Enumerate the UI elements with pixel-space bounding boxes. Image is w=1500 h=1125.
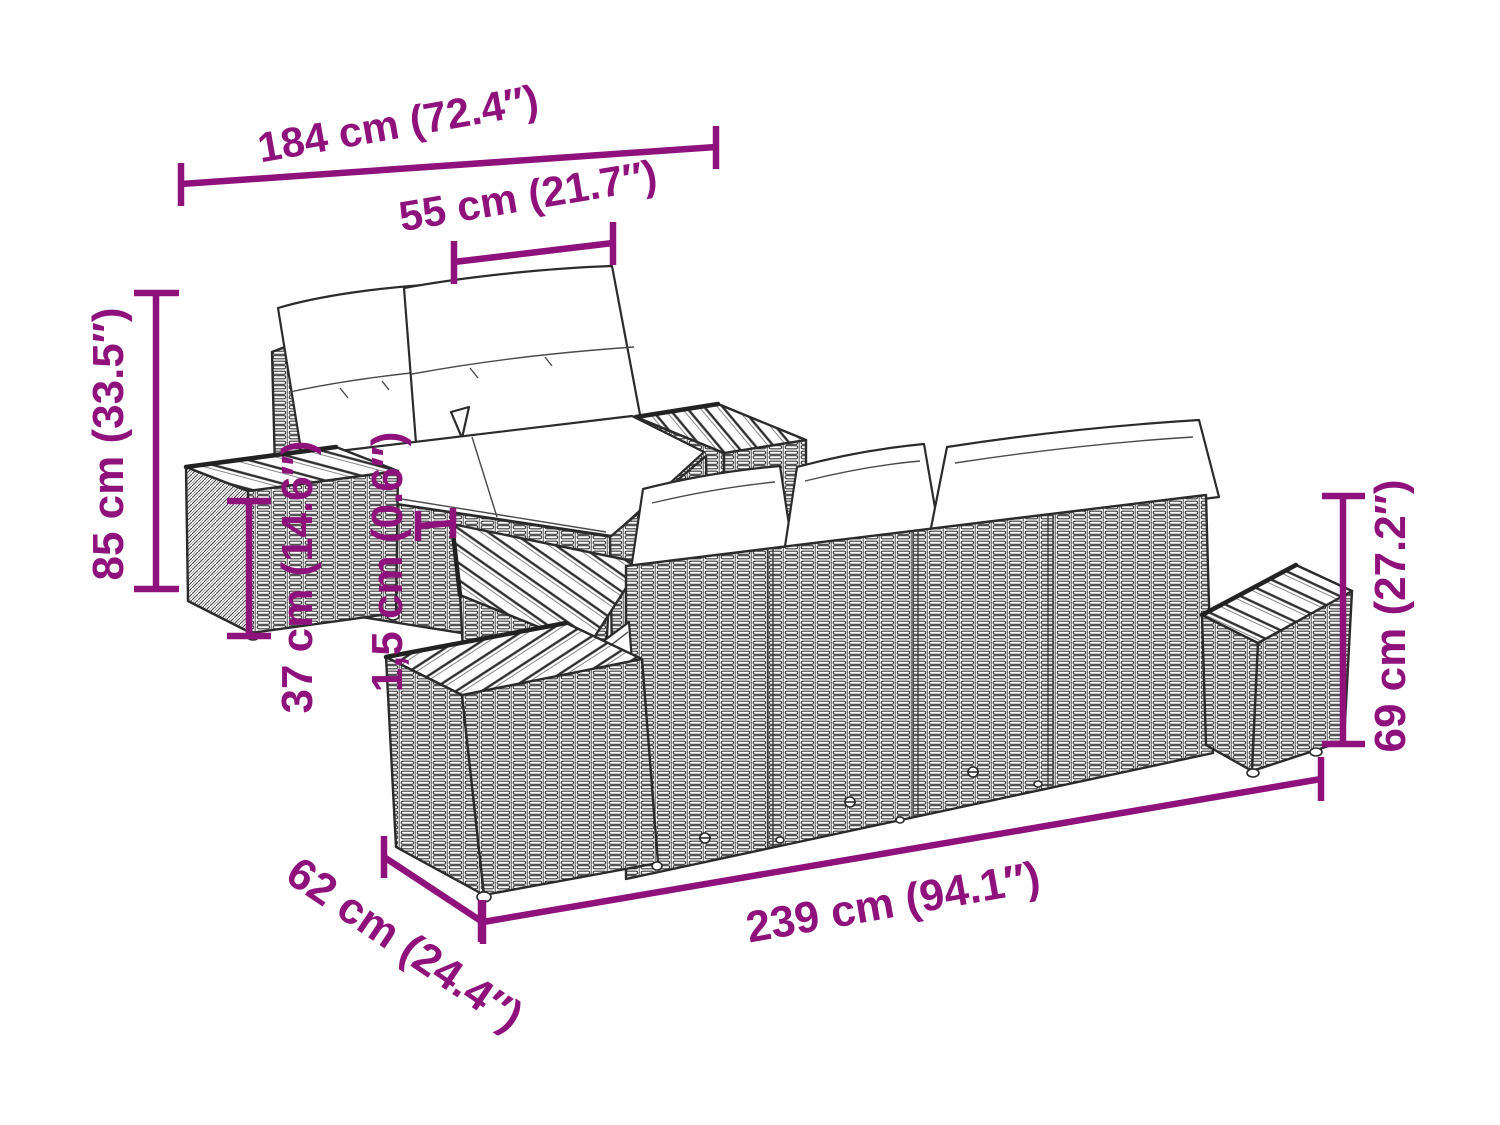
sofa-set-dimension-drawing: 184 cm (72.4″) 55 cm (21.7″) 85 cm (33.5…: [0, 0, 1500, 1125]
side-table-left-face-side: [186, 467, 251, 633]
end-table-left-face-right: [462, 659, 658, 895]
back-cushion-right: [404, 266, 641, 443]
dimension-label-tabletop-thickness: 1,5 cm (0.6″): [363, 432, 412, 693]
dimension-label-total-width: 184 cm (72.4″): [254, 76, 542, 172]
dimension-label-back-height: 69 cm (27.2″): [1366, 479, 1415, 752]
dimension-label-table-height: 37 cm (14.6″): [273, 440, 322, 713]
dimension-label-total-height: 85 cm (33.5″): [84, 307, 133, 580]
dimension-seat-width: 55 cm (21.7″): [396, 151, 661, 284]
dimension-total-height: 85 cm (33.5″): [84, 293, 179, 589]
dimension-diagram-page: 184 cm (72.4″) 55 cm (21.7″) 85 cm (33.5…: [0, 0, 1500, 1125]
